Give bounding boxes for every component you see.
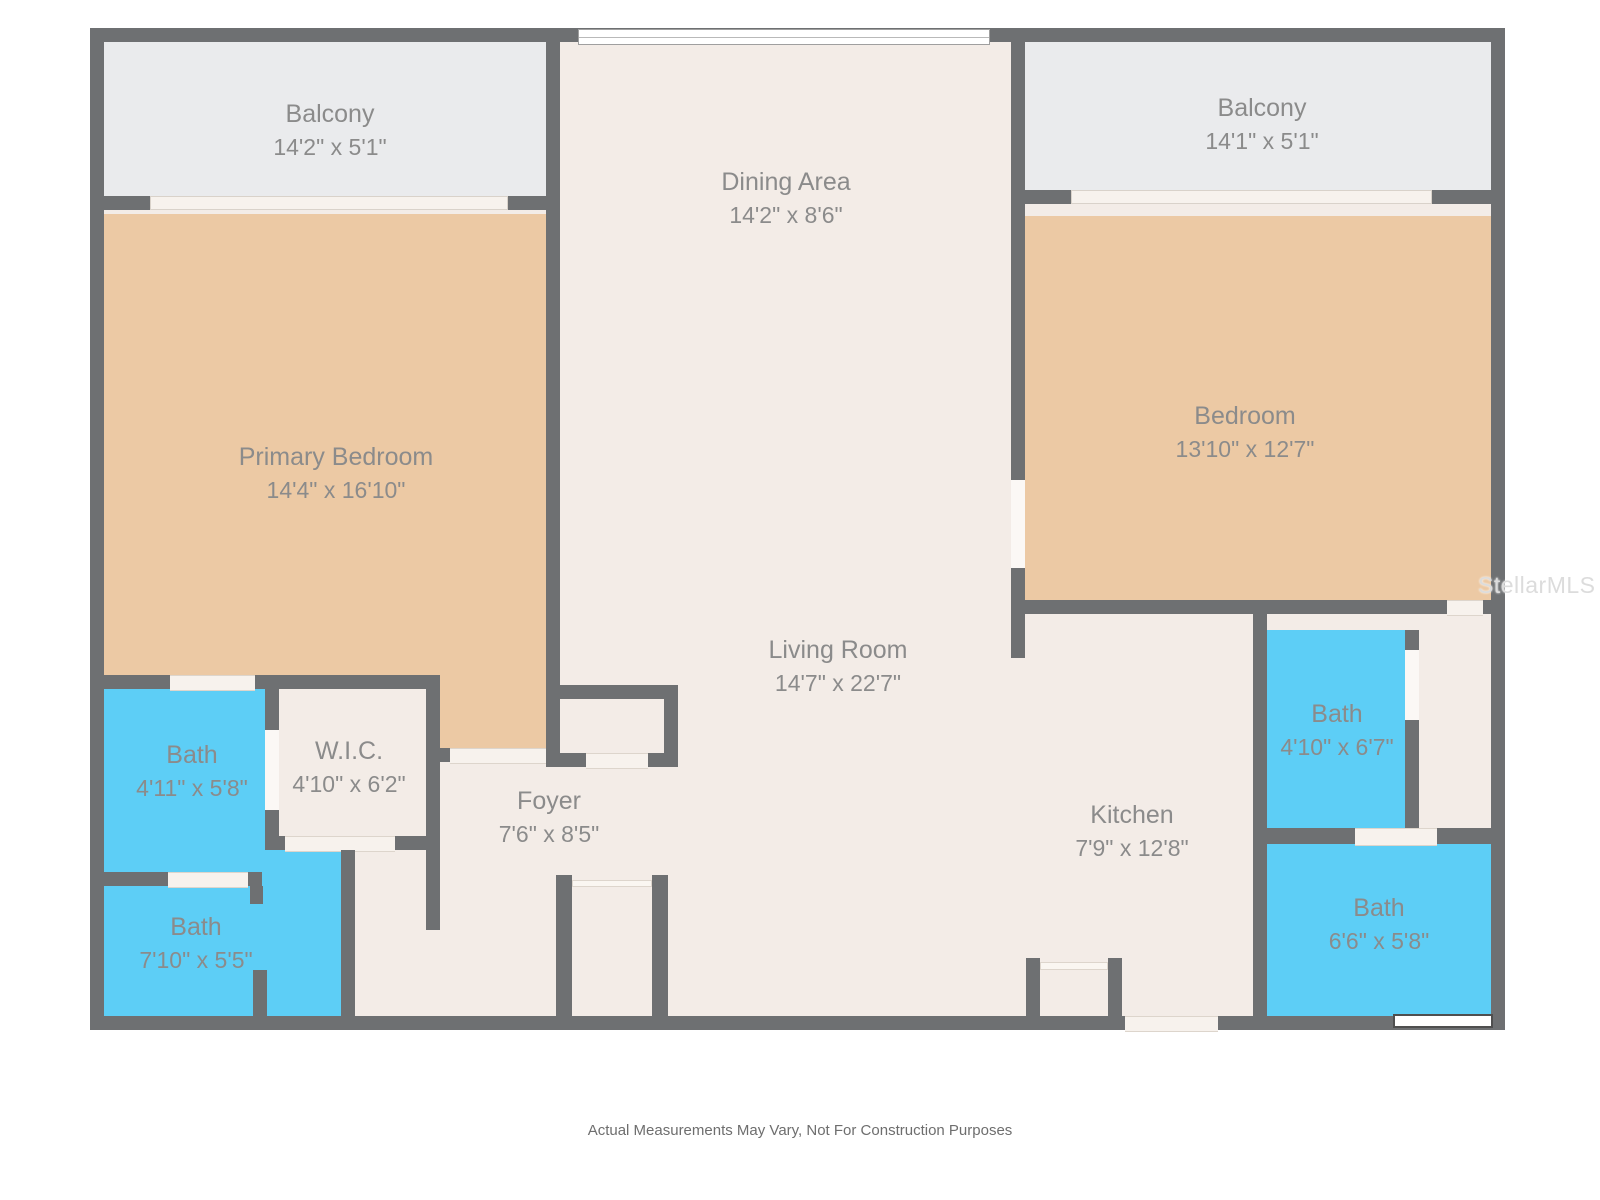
closet-sill xyxy=(1040,962,1108,970)
floor-plan: Balcony 14'2" x 5'1" Dining Area 14'2" x… xyxy=(0,0,1600,1200)
wall-segment xyxy=(652,875,668,1016)
room-label-primary-bedroom: Primary Bedroom 14'4" x 16'10" xyxy=(239,440,434,506)
watermark: StellarMLS xyxy=(1478,572,1595,599)
wall-segment xyxy=(1253,614,1267,1016)
hall-door-opening xyxy=(1447,600,1483,616)
closet-wall xyxy=(664,699,678,753)
balcony-right-slider-door xyxy=(1071,190,1432,204)
primary-bedroom-door-opening xyxy=(450,748,546,764)
door-opening xyxy=(285,836,395,852)
closet-door-opening xyxy=(586,753,648,769)
room-label-bath-lower-right: Bath 6'6" x 5'8" xyxy=(1329,891,1430,957)
wall-segment xyxy=(438,748,450,762)
wall-stub xyxy=(1026,958,1040,1016)
wall-segment xyxy=(1025,600,1491,614)
bath-lower-right-door-opening xyxy=(1355,828,1437,846)
wall-segment xyxy=(341,850,355,1016)
room-label-foyer: Foyer 7'6" x 8'5" xyxy=(499,784,600,850)
wall-segment xyxy=(1432,190,1491,204)
room-label-dining-area: Dining Area 14'2" x 8'6" xyxy=(721,165,850,231)
wic-door-opening xyxy=(265,730,279,810)
closet-wall xyxy=(648,753,678,767)
wall-segment xyxy=(1025,190,1071,204)
closet-sill xyxy=(572,880,652,887)
room-label-balcony-right: Balcony 14'1" x 5'1" xyxy=(1205,91,1318,157)
room-label-bath-lower-left: Bath 7'10" x 5'5" xyxy=(139,910,252,976)
wall-segment xyxy=(508,196,546,210)
room-label-kitchen: Kitchen 7'9" x 12'8" xyxy=(1075,798,1188,864)
closet-wall xyxy=(560,685,678,699)
room-label-bedroom: Bedroom 13'10" x 12'7" xyxy=(1176,399,1315,465)
bath-primary-door-opening xyxy=(170,675,255,691)
bedroom-door-opening xyxy=(1011,480,1025,568)
bath-lower-left-floor-arm xyxy=(262,850,341,886)
room-label-bath-upper-right: Bath 4'10" x 6'7" xyxy=(1280,697,1393,763)
wall-segment xyxy=(104,196,150,210)
bath-lower-left-door-opening xyxy=(168,872,248,888)
wall-stub xyxy=(250,886,263,904)
room-label-balcony-left: Balcony 14'2" x 5'1" xyxy=(273,97,386,163)
closet-wall xyxy=(560,753,586,767)
wall-segment xyxy=(426,675,440,930)
wall-stub xyxy=(1108,958,1122,1016)
wall-segment xyxy=(556,875,572,1016)
wall-segment xyxy=(104,675,440,689)
room-label-bath-primary: Bath 4'11" x 5'8" xyxy=(136,738,248,804)
bath-window xyxy=(1393,1014,1493,1028)
bath-upper-right-door-opening xyxy=(1405,650,1419,720)
room-label-wic: W.I.C. 4'10" x 6'2" xyxy=(292,734,405,800)
dining-window xyxy=(578,29,990,45)
entry-door-opening xyxy=(1125,1016,1218,1032)
room-label-living-room: Living Room 14'7" x 22'7" xyxy=(769,633,908,699)
wall-segment xyxy=(546,28,560,767)
disclaimer-text: Actual Measurements May Vary, Not For Co… xyxy=(0,1122,1600,1139)
wall-stub xyxy=(253,970,267,1016)
balcony-left-slider-door xyxy=(150,196,508,210)
